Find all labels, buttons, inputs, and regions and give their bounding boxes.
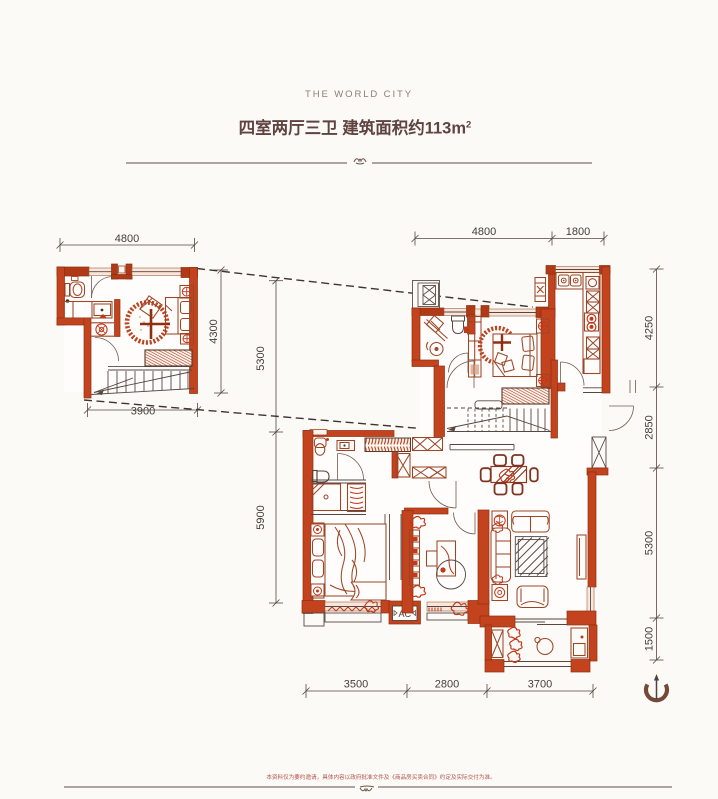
- svg-text:3900: 3900: [131, 406, 155, 418]
- svg-text:5300: 5300: [255, 346, 267, 370]
- svg-text:1800: 1800: [566, 226, 590, 238]
- svg-text:3700: 3700: [528, 679, 552, 691]
- svg-text:2850: 2850: [644, 415, 656, 439]
- svg-text:4250: 4250: [644, 316, 656, 340]
- svg-text:3500: 3500: [344, 679, 368, 691]
- svg-text:四室两厅三卫 建筑面积约113m2: 四室两厅三卫 建筑面积约113m2: [239, 118, 472, 138]
- svg-text:1500: 1500: [644, 627, 656, 651]
- svg-text:THE WORLD CITY: THE WORLD CITY: [305, 89, 413, 100]
- svg-text:5900: 5900: [255, 505, 267, 529]
- svg-text:4800: 4800: [115, 233, 139, 245]
- svg-text:本资料仅为要约邀请，具体内容以政府批准文件及《商品房买卖合同: 本资料仅为要约邀请，具体内容以政府批准文件及《商品房买卖合同》约定及实际交付为准…: [266, 773, 495, 781]
- svg-text:2800: 2800: [435, 679, 459, 691]
- svg-text:4300: 4300: [208, 319, 220, 343]
- svg-text:5300: 5300: [644, 531, 656, 555]
- svg-text:4800: 4800: [472, 226, 496, 238]
